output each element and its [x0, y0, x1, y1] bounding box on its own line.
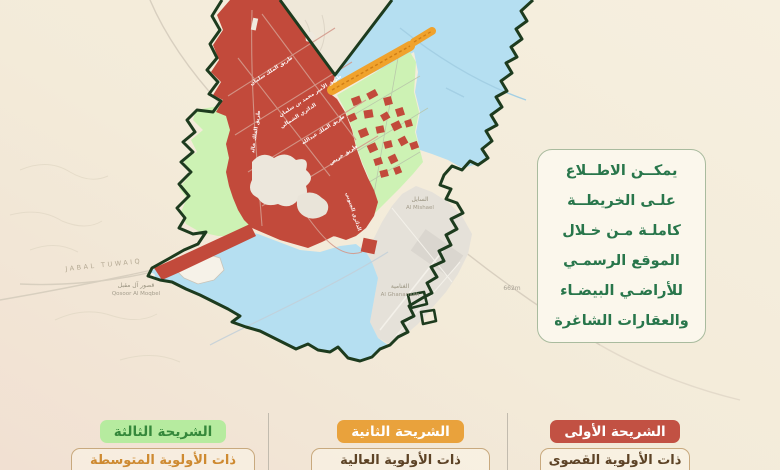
- third-tranche-priority-label: ذات الأولوية المتوسطة: [71, 448, 255, 470]
- info-panel: يمكــن الاطــلاع علـى الخريطــة كاملـة م…: [537, 149, 706, 343]
- second-tranche-priority-label: ذات الأولوية العالية: [311, 448, 490, 470]
- info-panel-line: للأراضـي البيضـاء: [546, 276, 697, 306]
- info-panel-line: يمكــن الاطــلاع: [546, 156, 697, 186]
- place-label-qosoor-en: Qosoor Al Moqbel: [112, 291, 161, 297]
- place-label-ghanamiah-en: Al Ghanamiah: [381, 292, 420, 298]
- place-label-qosoor-ar: قصور آل مقبل: [118, 280, 155, 289]
- info-panel-line: علـى الخريطــة: [546, 186, 697, 216]
- legend-divider: [507, 413, 508, 470]
- place-label-ghanamiah-ar: الغنامية: [391, 283, 410, 290]
- infographic-canvas: طريق الملك سلمان طريق الأمير محمد بن سلم…: [0, 0, 780, 470]
- legend-group-second-tranche: الشريحة الثانية ذات الأولوية العالية: [311, 420, 490, 470]
- first-tranche-priority-label: ذات الأولوية القصوى: [540, 448, 690, 470]
- second-tranche-chip: الشريحة الثانية: [337, 420, 464, 443]
- legend-group-third-tranche: الشريحة الثالثة ذات الأولوية المتوسطة: [71, 420, 255, 470]
- first-tranche-chip: الشريحة الأولى: [550, 420, 679, 443]
- legend-divider: [268, 413, 269, 470]
- legend-group-first-tranche: الشريحة الأولى ذات الأولوية القصوى: [540, 420, 690, 470]
- info-panel-line: والعقارات الشاغرة: [546, 306, 697, 336]
- place-label-mishael-ar: السايل: [412, 196, 429, 203]
- place-label-elevation: 662m: [503, 285, 520, 292]
- place-label-mishael-en: Al Mishael: [406, 205, 434, 211]
- info-panel-line: كاملـة مـن خـلال: [546, 216, 697, 246]
- info-panel-line: الموقع الرسمـي: [546, 246, 697, 276]
- legend: الشريحة الثالثة ذات الأولوية المتوسطة ال…: [0, 413, 780, 470]
- third-tranche-chip: الشريحة الثالثة: [100, 420, 227, 443]
